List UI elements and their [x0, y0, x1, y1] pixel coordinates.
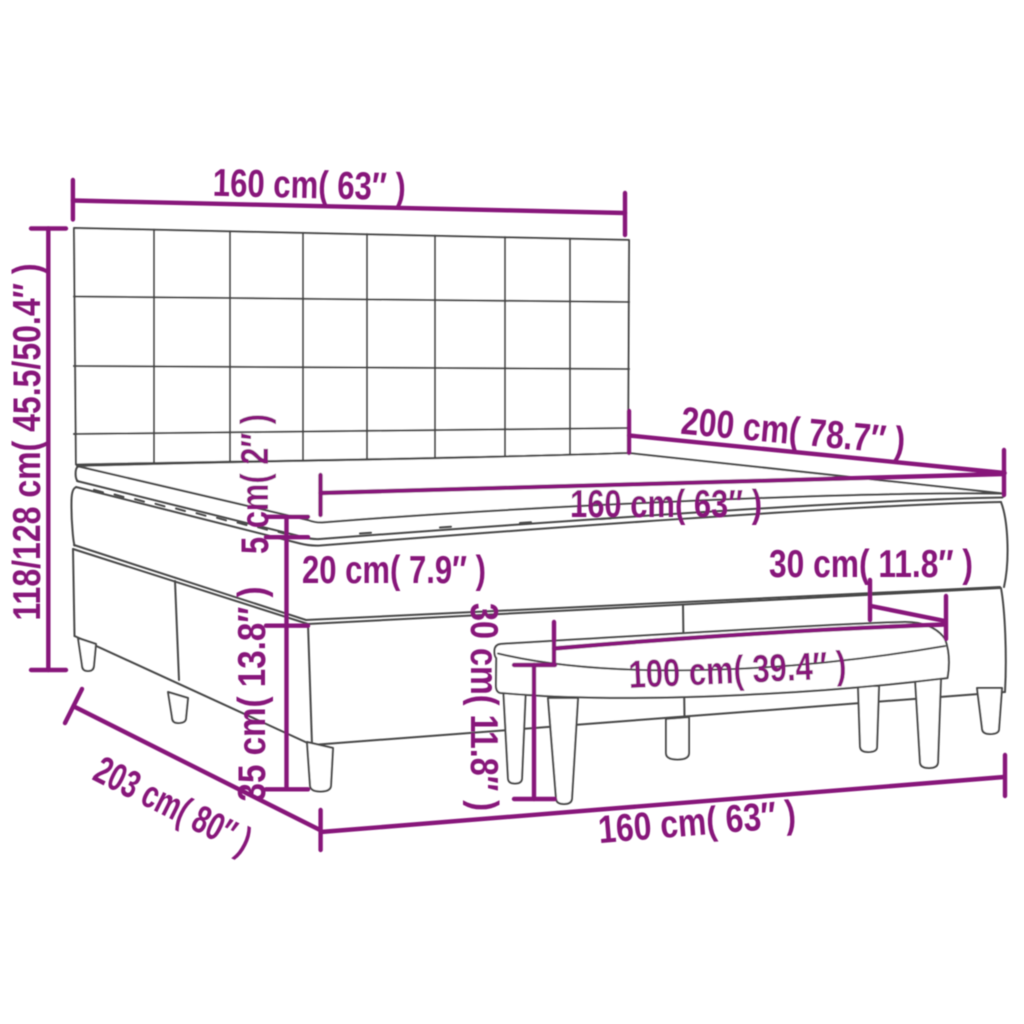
svg-text:160 cm( 63″ ): 160 cm( 63″ ) [570, 483, 762, 526]
svg-text:35 cm( 13.8″ ): 35 cm( 13.8″ ) [231, 587, 274, 802]
svg-text:160 cm( 63″ ): 160 cm( 63″ ) [212, 162, 406, 209]
svg-text:30 cm( 11.8″ ): 30 cm( 11.8″ ) [769, 543, 973, 586]
svg-text:5 cm( 2″ ): 5 cm( 2″ ) [234, 414, 277, 554]
svg-text:118/128 cm( 45.5/50.4″ ): 118/128 cm( 45.5/50.4″ ) [6, 264, 49, 621]
svg-text:30 cm( 11.8″ ): 30 cm( 11.8″ ) [462, 603, 505, 811]
svg-text:20 cm( 7.9″ ): 20 cm( 7.9″ ) [302, 549, 486, 592]
